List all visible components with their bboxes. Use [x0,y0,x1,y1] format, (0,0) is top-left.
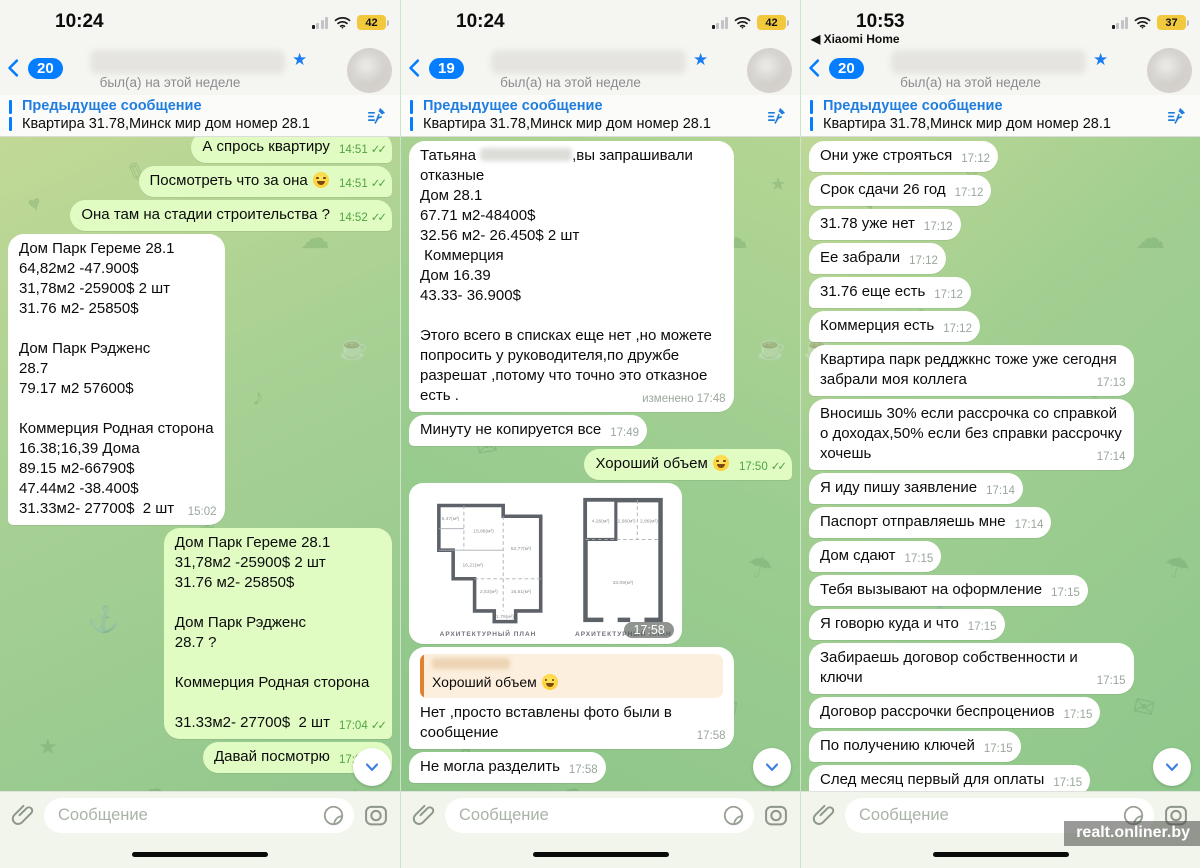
message-time: 17:12 [961,153,990,166]
home-indicator[interactable] [132,852,268,857]
message-bubble[interactable]: Квартира парк редджкнс тоже уже сегодня … [809,345,1134,396]
read-checks-icon: ✓✓ [371,178,384,190]
last-seen-status: был(а) на этой неделе [801,75,1140,90]
home-indicator[interactable] [533,852,669,857]
message-time: 17:15 [968,621,997,634]
message-text: А спрось квартиру [202,138,330,155]
message-text: Она там на стадии строительства ? [81,206,330,223]
message-bubble[interactable]: По получению ключей17:15 [809,731,1021,762]
message-bubble[interactable]: Паспорт отправляешь мне17:14 [809,507,1051,538]
contact-name-blurred[interactable] [491,50,686,74]
message-time: 17:15 [1064,709,1093,722]
message-bubble[interactable]: Татьяна ,вы запрашивали отказные Дом 28.… [409,141,734,412]
message-time: 14:52✓✓ [339,212,384,225]
pinned-text: Квартира 31.78,Минск мир дом номер 28.1 [823,116,1111,132]
message-time: 17:14 [1097,451,1126,464]
message-bubble[interactable]: Дом сдают17:15 [809,541,941,572]
message-text: Договор рассрочки беспроцениов [820,703,1055,720]
screenshot-collage: ♥✎☁★✉☂♪⚓❄☕♥★✉☁♪❄ А спрось квартиру14:51✓… [0,0,1200,868]
message-bubble[interactable]: Посмотреть что за она 14:51✓✓ [139,166,392,197]
svg-text:16,61(м²): 16,61(м²) [511,589,532,595]
message-time: 17:58 [569,764,598,777]
message-text: След месяц первый для оплаты [820,771,1044,788]
pinned-text: Квартира 31.78,Минск мир дом номер 28.1 [423,116,711,132]
input-placeholder: Сообщение [459,806,549,825]
message-list: Они уже строяться17:12Срок сдачи 26 год1… [801,136,1200,792]
photo-message[interactable]: 6,47(м²)15,86(м²)16,21(м²)52,77(м²)2,53(… [409,483,682,644]
camera-icon[interactable] [762,801,790,829]
phone-panel-3: ♥✎☁★✉☂♪⚓❄☕♥★✉☁♪❄ Они уже строяться17:12С… [800,0,1200,868]
avatar[interactable] [747,48,792,93]
battery-indicator: 37 [1157,15,1186,30]
pinned-indicator-bars [410,100,413,131]
pinned-title: Предыдущее сообщение [423,98,603,114]
quoted-text: Хороший объем [432,674,559,690]
message-time: 17:14 [1015,519,1044,532]
message-text: Вносишь 30% если рассрочка со справкой о… [820,405,1126,462]
wifi-icon [334,16,351,29]
status-bar: 10:24 42 [401,0,800,48]
reply-quote[interactable]: Хороший объем [420,654,723,698]
chevron-down-icon [1162,757,1182,777]
message-text: Давай посмотрю [214,748,330,765]
pinned-indicator-bars [9,100,12,131]
watermark: realt.onliner.by [1064,821,1200,846]
status-bar: 10:53 ◀ Xiaomi Home 37 [801,0,1200,48]
message-text: Дом Парк Гереме 28.1 31,78м2 -25900$ 2 ш… [175,534,370,731]
status-time: 10:53 [856,11,905,33]
chevron-down-icon [362,757,382,777]
chat-header: 20 ★ был(а) на этой неделе [801,48,1200,95]
composer-bar: Сообщение [0,791,400,868]
emoji-grinning-sweat-icon [313,172,329,188]
read-checks-icon: ✓✓ [371,720,384,732]
message-time: 17:12 [955,187,984,200]
message-bubble[interactable]: Она там на стадии строительства ?14:52✓✓ [70,200,392,231]
svg-text:2,53(м²): 2,53(м²) [480,589,498,595]
svg-text:16,21(м²): 16,21(м²) [463,562,484,568]
message-time: 17:15 [1053,777,1082,790]
message-text: Срок сдачи 26 год [820,181,946,198]
emoji-grinning-sweat-icon [542,674,558,690]
message-bubble[interactable]: Тебя вызывают на оформление17:15 [809,575,1088,606]
message-bubble[interactable]: Я иду пишу заявление17:14 [809,473,1023,504]
message-bubble[interactable]: Я говорю куда и что17:15 [809,609,1005,640]
message-time: 14:51✓✓ [339,144,384,157]
phone-panel-2: ♥✎☁★✉☂♪⚓❄☕♥★✉☁♪❄ Татьяна ,вы запрашивали… [400,0,800,868]
message-text: Татьяна ,вы запрашивали отказные Дом 28.… [420,147,716,404]
pinned-message-bar[interactable]: Предыдущее сообщение Квартира 31.78,Минс… [801,95,1200,137]
top-chrome: 10:53 ◀ Xiaomi Home 37 20 ★ был(а) на эт… [801,0,1200,136]
message-text: По получению ключей [820,737,975,754]
message-text: Паспорт отправляешь мне [820,513,1006,530]
composer-bar: Сообщение [401,791,800,868]
sticker-icon[interactable] [721,803,746,828]
message-bubble[interactable]: Хороший объем 17:50✓✓ [584,449,792,480]
message-time: 17:50✓✓ [739,461,784,474]
message-time: 17:13 [1097,377,1126,390]
message-text: Я говорю куда и что [820,615,959,632]
floor-plan-image: 4,26(м²)2,96(м²)2,86(м²)33,09(м²)АРХИТЕК… [575,493,672,638]
message-bubble[interactable]: Забираешь договор собственности и ключи1… [809,643,1134,694]
read-checks-icon: ✓✓ [371,144,384,156]
message-bubble[interactable]: Дом Парк Гереме 28.1 64,82м2 -47.900$ 31… [8,234,225,525]
message-bubble[interactable]: Дом Парк Гереме 28.1 31,78м2 -25900$ 2 ш… [164,528,392,739]
scroll-to-bottom-button[interactable] [353,748,391,786]
pinned-title: Предыдущее сообщение [22,98,202,114]
photo-timestamp: 17:58 [624,622,673,638]
input-placeholder: Сообщение [859,806,949,825]
message-bubble[interactable]: 31.76 еще есть17:12 [809,277,971,308]
svg-text:33,09(м²): 33,09(м²) [613,580,634,586]
scroll-to-bottom-button[interactable] [1153,748,1191,786]
message-time: 17:12 [909,255,938,268]
message-bubble[interactable]: Срок сдачи 26 год17:12 [809,175,991,206]
message-bubble[interactable]: Они уже строяться17:12 [809,141,998,172]
attach-paperclip-icon[interactable] [411,802,437,828]
floor-plans: 6,47(м²)15,86(м²)16,21(м²)52,77(м²)2,53(… [419,493,672,638]
top-chrome: 10:24 42 19 ★ был(а) на этой неделе [401,0,800,136]
message-text: Хороший объем [595,455,729,472]
pinned-message-bar[interactable]: Предыдущее сообщение Квартира 31.78,Минс… [0,95,400,137]
attach-paperclip-icon[interactable] [811,802,837,828]
pin-list-icon[interactable] [366,105,388,127]
pinned-message-bar[interactable]: Предыдущее сообщение Квартира 31.78,Минс… [401,95,800,137]
message-time: 14:51✓✓ [339,178,384,191]
message-input[interactable]: Сообщение [44,798,354,833]
floor-plan-image: 6,47(м²)15,86(м²)16,21(м²)52,77(м²)2,53(… [419,493,557,638]
message-bubble[interactable]: Коммерция есть17:12 [809,311,980,342]
message-list: Татьяна ,вы запрашивали отказные Дом 28.… [401,136,800,792]
message-text: Посмотреть что за она [150,172,330,189]
svg-text:52,77(м²): 52,77(м²) [511,546,532,552]
home-indicator[interactable] [933,852,1069,857]
message-bubble[interactable]: Не могла разделить17:58 [409,752,606,783]
message-text: Они уже строяться [820,147,952,164]
svg-text:6,47(м²): 6,47(м²) [442,516,460,522]
star-icon: ★ [292,50,307,70]
pin-list-icon[interactable] [1166,105,1188,127]
contact-name-blurred[interactable] [891,50,1086,74]
sticker-icon[interactable] [321,803,346,828]
message-bubble[interactable]: Договор рассрочки беспроцениов17:15 [809,697,1100,728]
message-bubble[interactable]: След месяц первый для оплаты17:15 [809,765,1090,792]
message-text: Дом сдают [820,547,896,564]
message-time: 17:14 [986,485,1015,498]
message-text: Я иду пишу заявление [820,479,977,496]
wifi-icon [1134,16,1151,29]
message-text: 31.78 уже нет [820,215,915,232]
top-chrome: 10:24 42 20 ★ был(а) на этой неделе [0,0,400,136]
pin-list-icon[interactable] [766,105,788,127]
wifi-icon [734,16,751,29]
message-input[interactable]: Сообщение [445,798,754,833]
status-time: 10:24 [55,11,104,33]
last-seen-status: был(а) на этой неделе [0,75,340,90]
chat-header: 20 ★ был(а) на этой неделе [0,48,400,95]
svg-text:1,79(м²): 1,79(м²) [496,614,514,620]
input-placeholder: Сообщение [58,806,148,825]
back-to-app-label[interactable]: ◀ Xiaomi Home [811,32,900,46]
message-time: изменено 17:48 [642,393,725,406]
star-icon: ★ [693,50,708,70]
emoji-grinning-sweat-icon [713,455,729,471]
svg-text:4,26(м²): 4,26(м²) [592,518,610,524]
message-text: Нет ,просто вставлены фото были в сообще… [420,704,676,741]
message-text: Ее забрали [820,249,900,266]
message-bubble[interactable]: Хороший объем Нет ,просто вставлены фото… [409,647,734,749]
message-bubble[interactable]: А спрось квартиру14:51✓✓ [191,136,392,163]
cellular-signal-icon [712,17,729,29]
pinned-title: Предыдущее сообщение [823,98,1003,114]
status-bar: 10:24 42 [0,0,400,48]
message-text: Квартира парк редджкнс тоже уже сегодня … [820,351,1121,388]
message-text: Тебя вызывают на оформление [820,581,1042,598]
last-seen-status: был(а) на этой неделе [401,75,740,90]
attach-paperclip-icon[interactable] [10,802,36,828]
message-text: Не могла разделить [420,758,560,775]
read-checks-icon: ✓✓ [771,461,784,473]
battery-indicator: 42 [357,15,386,30]
message-text: 31.76 еще есть [820,283,925,300]
contact-name-blurred[interactable] [90,50,285,74]
chat-header: 19 ★ был(а) на этой неделе [401,48,800,95]
message-time: 17:15 [905,553,934,566]
message-bubble[interactable]: Вносишь 30% если рассрочка со справкой о… [809,399,1134,470]
message-time: 17:15 [1097,675,1126,688]
battery-indicator: 42 [757,15,786,30]
message-list: А спрось квартиру14:51✓✓Посмотреть что з… [0,136,400,792]
floor-plan-caption: АРХИТЕКТУРНЫЙ ПЛАН [440,631,537,638]
message-bubble[interactable]: Ее забрали17:12 [809,243,946,274]
svg-text:2,96(м²): 2,96(м²) [618,518,636,524]
message-time: 17:49 [610,427,639,440]
message-time: 17:12 [943,323,972,336]
message-time: 17:04✓✓ [339,720,384,733]
avatar[interactable] [1147,48,1192,93]
quoted-name-blurred [432,658,510,669]
message-text: Забираешь договор собственности и ключи [820,649,1082,686]
message-bubble[interactable]: 31.78 уже нет17:12 [809,209,961,240]
message-bubble[interactable]: Минуту не копируется все17:49 [409,415,647,446]
message-time: 17:12 [924,221,953,234]
blurred-name [480,148,572,161]
message-text: Коммерция есть [820,317,934,334]
message-time: 17:58 [697,730,726,743]
message-time: 17:15 [1051,587,1080,600]
star-icon: ★ [1093,50,1108,70]
chevron-down-icon [762,757,782,777]
message-time: 17:12 [934,289,963,302]
cellular-signal-icon [312,17,329,29]
read-checks-icon: ✓✓ [371,212,384,224]
message-time: 17:15 [984,743,1013,756]
pinned-indicator-bars [810,100,813,131]
phone-panel-1: ♥✎☁★✉☂♪⚓❄☕♥★✉☁♪❄ А спрось квартиру14:51✓… [0,0,400,868]
status-time: 10:24 [456,11,505,33]
message-text: Дом Парк Гереме 28.1 64,82м2 -47.900$ 31… [19,240,214,517]
avatar[interactable] [347,48,392,93]
message-text: Минуту не копируется все [420,421,601,438]
svg-text:15,86(м²): 15,86(м²) [473,528,494,534]
pinned-text: Квартира 31.78,Минск мир дом номер 28.1 [22,116,310,132]
scroll-to-bottom-button[interactable] [753,748,791,786]
cellular-signal-icon [1112,17,1129,29]
svg-text:2,86(м²): 2,86(м²) [640,518,658,524]
message-time: 15:02 [188,506,217,519]
camera-icon[interactable] [362,801,390,829]
